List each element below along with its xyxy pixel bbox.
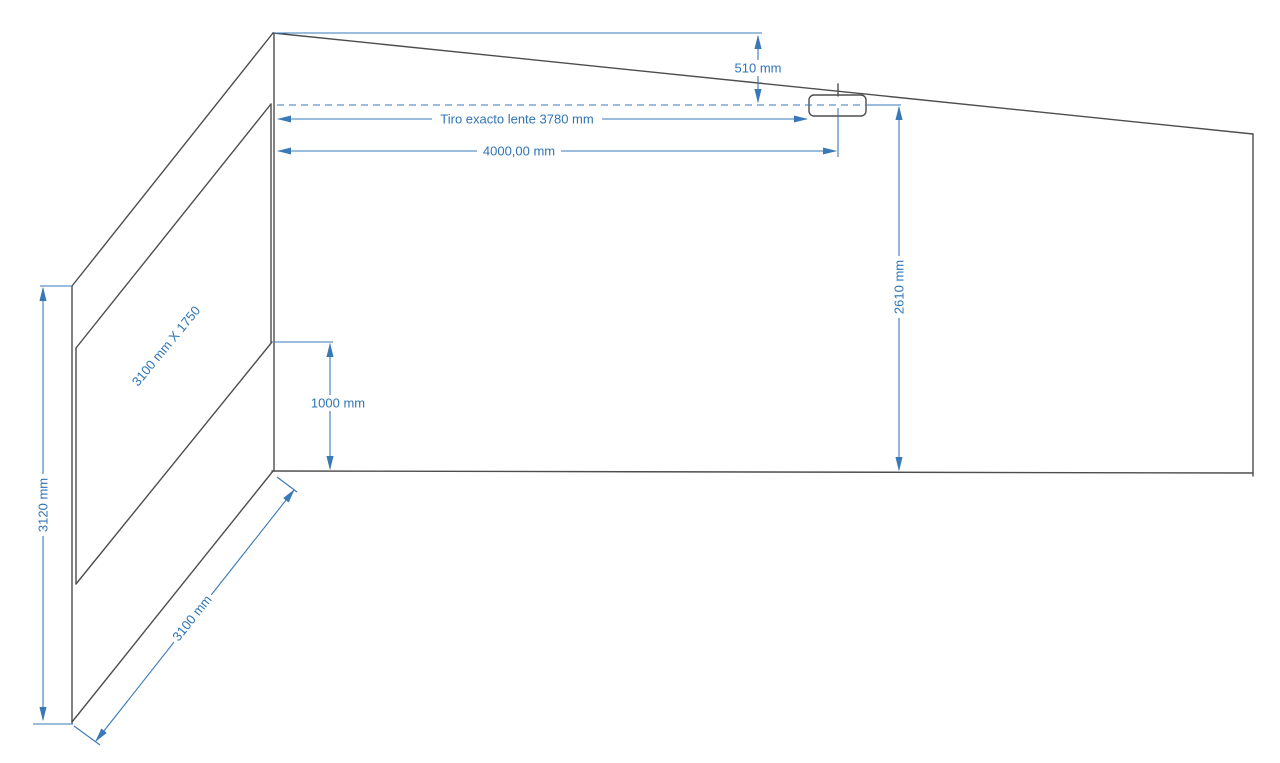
projector-distance-label: 4000,00 mm xyxy=(483,144,555,159)
lens-height-label: 2610 mm xyxy=(892,260,907,314)
screen-bottom-height-label: 1000 mm xyxy=(311,396,365,411)
lens-throw-label: Tiro exacto lente 3780 mm xyxy=(440,112,593,127)
wall-height-label: 3120 mm xyxy=(36,478,51,532)
extension-lines xyxy=(33,33,901,745)
wall-width-label-group: 3100 mm xyxy=(167,590,217,647)
floor-edge xyxy=(272,471,1253,473)
screen-bottom-edge xyxy=(76,342,272,584)
wall-bottom-edge xyxy=(72,471,273,722)
screen-size-label: 3100 mm X 1750 xyxy=(129,303,204,389)
cad-elevation-drawing: 510 mm Tiro exacto lente 3780 mm 4000,00… xyxy=(0,0,1280,763)
wall-width-far-tick xyxy=(277,477,297,492)
lens-throw-label-group: Tiro exacto lente 3780 mm xyxy=(432,111,602,127)
wall-top-edge xyxy=(72,33,273,286)
screen-size-label-group: 3100 mm X 1750 xyxy=(129,303,204,389)
wall-width-label: 3100 mm xyxy=(169,592,214,644)
screen-bottom-height-label-group: 1000 mm xyxy=(305,395,371,411)
screen-wall xyxy=(72,33,273,723)
room-outline xyxy=(272,33,1253,476)
lens-height-label-group: 2610 mm xyxy=(891,256,907,318)
projector-distance-label-group: 4000,00 mm xyxy=(477,143,561,159)
ceiling-drop-label: 510 mm xyxy=(735,61,782,76)
screen-top-edge xyxy=(76,104,271,348)
ceiling-drop-label-group: 510 mm xyxy=(730,60,786,76)
wall-width-near-tick xyxy=(74,726,100,745)
drawing-canvas: 510 mm Tiro exacto lente 3780 mm 4000,00… xyxy=(0,0,1280,763)
wall-height-label-group: 3120 mm xyxy=(35,474,51,536)
